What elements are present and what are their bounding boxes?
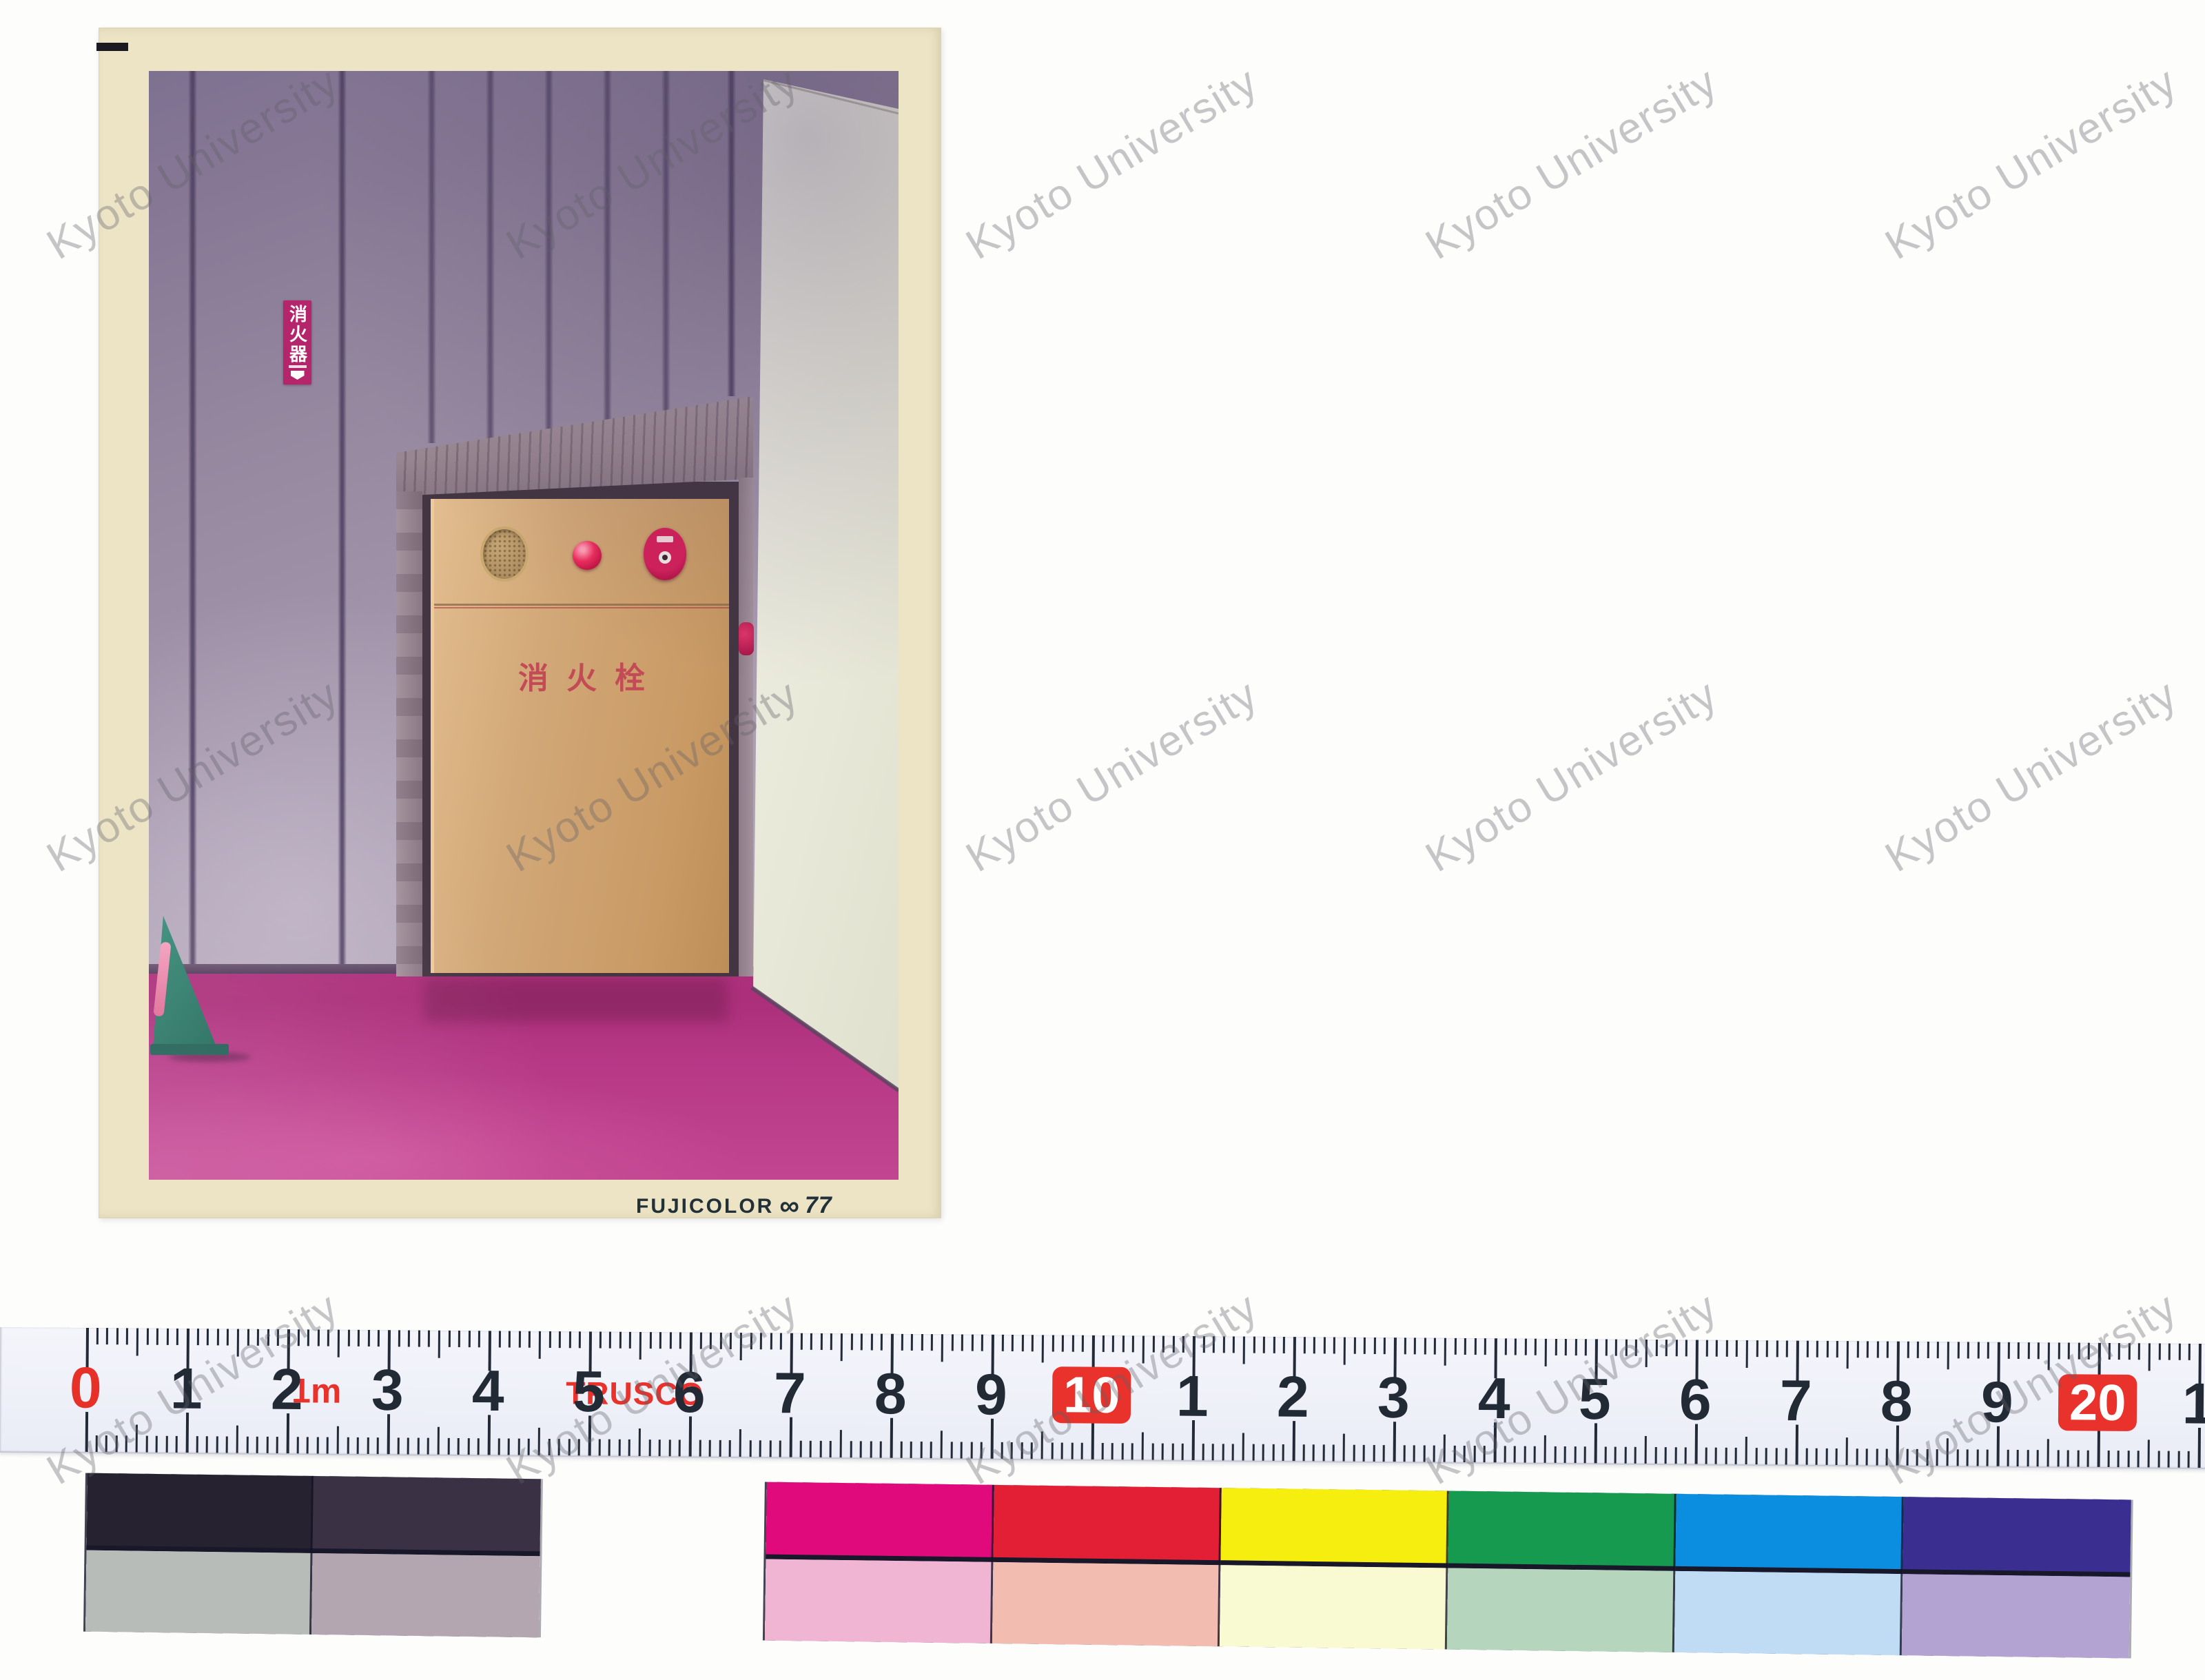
- ruler-tick: [1766, 1340, 1768, 1357]
- ruler-tick: [1936, 1449, 1938, 1466]
- ruler-tick: [2098, 1427, 2100, 1467]
- ruler-tick: [1101, 1443, 1103, 1459]
- ruler-tick: [1756, 1340, 1758, 1357]
- ruler-tick: [880, 1442, 882, 1458]
- ruler-tick: [1867, 1341, 1869, 1358]
- ruler-tick: [1262, 1444, 1264, 1461]
- ruler-tick: [1524, 1446, 1526, 1463]
- ruler-tick: [961, 1442, 963, 1458]
- ruler-tick: [1917, 1342, 1919, 1358]
- ruler-number: 8: [1880, 1372, 1913, 1430]
- ruler-tick: [357, 1437, 359, 1454]
- ruler-tick: [639, 1332, 642, 1360]
- ruler-tick: [740, 1333, 742, 1360]
- ruler-tick: [106, 1328, 108, 1344]
- ruler-tick: [1504, 1446, 1506, 1462]
- ruler-tick: [347, 1330, 349, 1346]
- alarm-button-label-plate: [657, 536, 673, 542]
- ruler-tick: [1313, 1337, 1315, 1353]
- ruler-tick: [1967, 1342, 1969, 1358]
- ruler-tick: [1947, 1342, 1949, 1369]
- ruler-tick: [1081, 1443, 1083, 1459]
- ruler-tick: [237, 1329, 239, 1357]
- ruler-tick: [1746, 1340, 1748, 1368]
- ruler-tick: [709, 1440, 711, 1457]
- ruler-tick: [1182, 1444, 1184, 1460]
- ruler-tick: [1072, 1335, 1074, 1352]
- ruler-tick: [1222, 1444, 1224, 1460]
- ruler-tick: [1726, 1340, 1728, 1357]
- wall-groove: [427, 71, 436, 443]
- color-patch: [87, 1473, 315, 1553]
- ruler-tick: [2038, 1342, 2040, 1359]
- ruler-tick: [1705, 1448, 1707, 1464]
- ruler-tick: [236, 1426, 238, 1453]
- ruler-tick: [639, 1428, 641, 1456]
- ruler-tick: [900, 1442, 902, 1458]
- ruler-tick: [1434, 1338, 1436, 1355]
- ruler-tick: [941, 1431, 943, 1458]
- sign-stand-base: [150, 1044, 229, 1055]
- ruler-tick: [1937, 1342, 1939, 1358]
- ruler-tick: [910, 1442, 912, 1458]
- ruler-tick: [1957, 1342, 1959, 1358]
- ruler-tick: [941, 1334, 943, 1362]
- ruler-tick: [1876, 1448, 1878, 1465]
- ruler-tick: [1433, 1446, 1435, 1462]
- ruler-tick: [1233, 1336, 1235, 1353]
- ruler-tick: [2058, 1342, 2060, 1359]
- watermark-text: Kyoto University: [1877, 670, 2186, 882]
- ruler-tick: [860, 1441, 862, 1457]
- ruler-tick: [578, 1439, 580, 1455]
- ruler-tick: [469, 1331, 471, 1347]
- ruler-number: 9: [975, 1365, 1007, 1423]
- ruler-tick: [165, 1436, 167, 1453]
- color-patch: [1903, 1497, 2131, 1577]
- ruler-tick: [1575, 1339, 1577, 1355]
- ruler-tick: [1635, 1340, 1637, 1356]
- ruler-tick: [176, 1329, 178, 1345]
- ruler-tick: [2077, 1451, 2079, 1467]
- ruler-tick: [1886, 1449, 1888, 1466]
- ruler-tick: [1545, 1339, 1547, 1366]
- ruler-tick: [1213, 1336, 1215, 1353]
- ruler-tick: [901, 1334, 903, 1351]
- ruler-tick: [911, 1334, 913, 1351]
- ruler-tick: [920, 1442, 922, 1458]
- ruler-tick: [217, 1329, 219, 1345]
- ruler-tick: [266, 1437, 268, 1453]
- color-patch-column: [311, 1476, 541, 1637]
- ruler-tick: [176, 1436, 178, 1453]
- ruler-tick: [2007, 1342, 2009, 1359]
- ruler-tick: [1484, 1446, 1486, 1462]
- ruler-tick: [1645, 1436, 1647, 1464]
- ruler-tick: [659, 1332, 661, 1349]
- ruler-number: 8: [874, 1364, 907, 1422]
- ruler-tick: [579, 1331, 581, 1348]
- ruler-tick: [840, 1430, 842, 1457]
- ruler-tick: [1625, 1340, 1628, 1356]
- ruler-tick: [1122, 1335, 1125, 1352]
- ruler-tick: [1564, 1446, 1566, 1463]
- ruler-tick: [759, 1440, 761, 1457]
- ruler-tick: [2068, 1343, 2070, 1360]
- ruler-tick: [1565, 1339, 1567, 1355]
- ruler-tick: [930, 1442, 932, 1458]
- ruler-number: 6: [673, 1363, 706, 1421]
- ruler-tick: [1825, 1448, 1827, 1465]
- ruler-tick: [1253, 1337, 1255, 1353]
- ruler-tick: [1303, 1337, 1305, 1353]
- ruler-tick: [779, 1440, 781, 1457]
- color-patch: [312, 1476, 540, 1556]
- cabinet-handle: [739, 622, 754, 655]
- ruler-tick: [1956, 1449, 1958, 1466]
- ruler-tick: [1716, 1340, 1718, 1357]
- color-patch: [85, 1550, 314, 1635]
- ruler-tick: [458, 1438, 460, 1455]
- ruler-tick: [1967, 1449, 1969, 1466]
- ruler-tick: [539, 1331, 541, 1359]
- ruler-tick: [478, 1331, 480, 1347]
- ruler-tick: [699, 1440, 701, 1457]
- ruler-tick: [2017, 1450, 2019, 1466]
- ruler-tick: [981, 1442, 983, 1459]
- ruler-tick: [226, 1436, 228, 1453]
- ruler-tick: [2088, 1343, 2090, 1360]
- ruler-tick: [1705, 1340, 1707, 1357]
- ruler-tick: [1947, 1438, 1949, 1466]
- ruler-tick: [760, 1333, 762, 1349]
- ruler-tick: [1173, 1336, 1175, 1353]
- color-patch: [993, 1485, 1221, 1565]
- ruler-tick: [448, 1331, 450, 1347]
- ruler-tick: [136, 1328, 139, 1355]
- ruler-number: 5: [1579, 1370, 1611, 1428]
- ruler-tick: [659, 1440, 661, 1456]
- ruler-tick: [1384, 1338, 1386, 1354]
- ruler-tick: [1554, 1446, 1556, 1463]
- ruler-tick: [730, 1333, 732, 1349]
- ruler-tick: [1534, 1446, 1536, 1463]
- ruler-tick: [1142, 1335, 1145, 1363]
- ruler-tick: [1816, 1448, 1818, 1465]
- ruler-tick: [1404, 1338, 1406, 1354]
- ruler-tick: [256, 1437, 258, 1453]
- wall-groove: [603, 71, 612, 440]
- ruler-tick: [1776, 1340, 1778, 1357]
- ruler-tick: [1272, 1444, 1274, 1461]
- ruler-tick: [619, 1332, 622, 1349]
- ruler-tick: [1614, 1447, 1617, 1464]
- ruler-tick: [337, 1426, 339, 1454]
- ruler-tick: [418, 1331, 420, 1347]
- ruler-tick: [1364, 1338, 1366, 1354]
- cabinet-text: 消火栓: [434, 653, 729, 697]
- ruler-tick: [609, 1332, 611, 1349]
- ruler-tick: [648, 1440, 650, 1456]
- ruler-tick: [1051, 1442, 1053, 1459]
- color-patch-column: [765, 1482, 994, 1643]
- ruler-tick: [699, 1333, 701, 1349]
- ruler-tick: [1654, 1447, 1657, 1464]
- ruler-tick: [629, 1332, 631, 1349]
- ruler-tick: [2117, 1451, 2120, 1467]
- ruler-tick: [1927, 1342, 1929, 1358]
- ruler-tick: [1544, 1435, 1546, 1463]
- ruler-tick: [1162, 1336, 1165, 1353]
- ruler-tick: [1132, 1335, 1134, 1352]
- ruler-tick: [1142, 1432, 1144, 1459]
- color-patch: [1220, 1565, 1448, 1649]
- ruler-tick: [2107, 1451, 2109, 1467]
- ruler-tick: [950, 1442, 952, 1458]
- ruler-tick: [1212, 1444, 1214, 1460]
- ruler-tick: [780, 1333, 782, 1349]
- ruler-number-highlighted: 10: [1052, 1366, 1131, 1424]
- ruler-tick: [599, 1332, 601, 1349]
- ruler-tick: [970, 1442, 972, 1459]
- ruler-tick: [2138, 1343, 2140, 1360]
- ruler-tick: [799, 1441, 801, 1457]
- ruler-tick: [1926, 1449, 1928, 1466]
- ruler-tick: [1012, 1335, 1014, 1351]
- ruler-tick: [819, 1441, 821, 1457]
- ruler-number: 5: [573, 1362, 605, 1420]
- ruler-tick: [1574, 1446, 1576, 1463]
- ruler-tick: [2078, 1343, 2080, 1360]
- ruler-tick: [861, 1333, 863, 1350]
- ruler-tick: [1856, 1448, 1858, 1465]
- ruler-tick: [2168, 1451, 2170, 1468]
- ruler-tick: [1765, 1448, 1767, 1464]
- ruler-tick: [841, 1333, 843, 1361]
- ruler-number: 7: [774, 1364, 806, 1422]
- ruler-tick: [438, 1427, 440, 1455]
- ruler-number: 4: [472, 1362, 504, 1420]
- ruler-tick: [1585, 1339, 1587, 1355]
- color-patch: [766, 1482, 994, 1562]
- ruler-tick: [800, 1333, 802, 1350]
- ruler-number: 1: [2182, 1374, 2205, 1432]
- fujicolor-chain-logo-icon: ∞: [779, 1191, 799, 1221]
- ruler-tick: [1685, 1447, 1687, 1464]
- ruler-tick: [1535, 1339, 1537, 1355]
- ruler-tick: [95, 1435, 97, 1452]
- color-patch: [765, 1559, 994, 1643]
- ruler-tick: [167, 1329, 169, 1345]
- ruler-tick: [307, 1329, 309, 1346]
- ruler-tick: [1243, 1337, 1245, 1364]
- alarm-lamp-icon: [573, 541, 602, 570]
- ruler-tick: [196, 1436, 198, 1453]
- ruler-tick: [2137, 1451, 2140, 1467]
- ruler-tick: [297, 1329, 299, 1346]
- ruler-tick: [1676, 1340, 1678, 1356]
- ruler-tick: [1001, 1442, 1003, 1459]
- ruler-tick: [1344, 1338, 1346, 1365]
- ruler-tick: [810, 1441, 812, 1457]
- ruler-number: 4: [1478, 1369, 1510, 1427]
- ruler-tick: [769, 1440, 771, 1457]
- ruler-tick: [327, 1330, 329, 1346]
- ruler-tick: [598, 1440, 600, 1456]
- ruler-tick: [378, 1330, 380, 1346]
- film-number-text: 77: [805, 1192, 832, 1218]
- ruler-tick: [1011, 1442, 1013, 1459]
- color-patch-column: [992, 1485, 1222, 1646]
- ruler-tick: [1313, 1444, 1315, 1461]
- ruler-tick: [1263, 1337, 1265, 1353]
- ruler-tick: [1282, 1444, 1284, 1461]
- ruler-tick: [438, 1331, 440, 1358]
- ruler-tick: [1444, 1435, 1446, 1462]
- ruler-tick: [1584, 1446, 1586, 1463]
- ruler-tick: [1605, 1339, 1607, 1355]
- ruler-tick: [821, 1333, 823, 1350]
- ruler-tick: [1152, 1336, 1154, 1353]
- ruler-tick: [1736, 1340, 1738, 1357]
- ruler-tick: [1615, 1340, 1617, 1356]
- lit-side-wall: [741, 71, 899, 1098]
- ruler-tick: [2179, 1344, 2181, 1360]
- ruler-tick: [548, 1331, 551, 1348]
- ruler-tick: [529, 1331, 531, 1348]
- ruler-tick: [1665, 1340, 1668, 1356]
- ruler-tick: [1182, 1336, 1184, 1353]
- ruler-tick: [1806, 1341, 1808, 1358]
- ruler-tick: [1202, 1444, 1204, 1460]
- photograph: 消火栓 消火器: [149, 71, 899, 1180]
- ruler-tick: [397, 1437, 399, 1454]
- ruler-tick: [1665, 1447, 1667, 1464]
- color-patch: [1447, 1568, 1676, 1652]
- ruler-tick: [850, 1333, 852, 1350]
- ruler-tick: [296, 1437, 298, 1453]
- ruler-number: 9: [1981, 1373, 2013, 1431]
- ruler-tick: [628, 1440, 630, 1456]
- registration-dash-mark: [96, 43, 128, 51]
- ruler-tick: [1473, 1446, 1475, 1462]
- ruler-number-highlighted: 20: [2058, 1374, 2137, 1431]
- ruler-tick: [447, 1438, 449, 1455]
- ruler-tick: [1655, 1340, 1657, 1356]
- ruler-tick: [2188, 1344, 2191, 1360]
- ruler-tick: [972, 1335, 974, 1351]
- ruler-tick: [1171, 1444, 1173, 1460]
- ruler-tick: [2007, 1450, 2009, 1466]
- ruler-tick: [227, 1329, 229, 1345]
- ruler-tick: [1363, 1445, 1365, 1462]
- ruler-tick: [1987, 1342, 1989, 1359]
- ruler-tick: [1634, 1447, 1637, 1464]
- ruler-tick: [569, 1331, 571, 1348]
- color-patch: [1220, 1488, 1448, 1568]
- color-calibration-chart: [0, 1472, 2205, 1680]
- ruler-tick: [267, 1329, 269, 1346]
- ruler-tick: [136, 1424, 138, 1452]
- ruler-number: 2: [271, 1360, 303, 1418]
- ruler-tick: [398, 1330, 400, 1346]
- ruler-tick: [277, 1329, 279, 1346]
- watermark-text: Kyoto University: [1877, 57, 2186, 269]
- fire-hydrant-cabinet: 消火栓: [431, 499, 729, 973]
- ruler-tick: [1816, 1341, 1818, 1358]
- ruler-tick: [1725, 1448, 1727, 1464]
- ruler-tick: [2157, 1451, 2160, 1468]
- ruler-tick: [1322, 1444, 1324, 1461]
- color-patch: [311, 1553, 540, 1637]
- ruler-tick: [1413, 1445, 1415, 1462]
- ruler-tick: [115, 1435, 117, 1452]
- ruler-tick: [921, 1334, 923, 1351]
- ruler-tick: [156, 1329, 158, 1345]
- ruler-number: 7: [1780, 1371, 1812, 1429]
- ruler-tick: [517, 1439, 520, 1455]
- ruler-tick: [1685, 1340, 1688, 1356]
- ruler-tick: [1403, 1445, 1405, 1462]
- alarm-bell-button-icon: [644, 528, 686, 580]
- ruler-tick: [1333, 1445, 1335, 1462]
- color-patch: [992, 1562, 1221, 1646]
- ruler-tick: [156, 1436, 158, 1453]
- ruler-tick: [1735, 1448, 1737, 1464]
- sign-small-text-bar: [289, 365, 307, 368]
- ruler-tick: [668, 1440, 670, 1456]
- sign-arrow-icon: [291, 371, 305, 380]
- watermark-text: Kyoto University: [958, 670, 1266, 882]
- ruler-tick: [1444, 1338, 1446, 1366]
- ruler-tick: [1604, 1446, 1606, 1463]
- ruler-tick: [257, 1329, 259, 1346]
- ruler-tick: [1102, 1335, 1104, 1352]
- ruler-tick: [1343, 1434, 1345, 1462]
- ruler-tick: [216, 1436, 218, 1453]
- ruler-tick: [1302, 1444, 1304, 1461]
- ruler-tick: [196, 1329, 198, 1345]
- ruler-tick: [1242, 1433, 1244, 1461]
- ruler-tick: [417, 1438, 419, 1455]
- ruler-tick: [749, 1440, 751, 1457]
- ruler-tick: [1453, 1446, 1455, 1462]
- alcove-right-jamb: [739, 478, 753, 976]
- ruler-number: 1: [170, 1359, 203, 1417]
- ruler-tick: [1624, 1447, 1626, 1464]
- ruler-tick: [509, 1331, 511, 1348]
- ruler-tick: [2118, 1343, 2120, 1360]
- ruler-tick: [1423, 1446, 1425, 1462]
- ruler-tick: [548, 1439, 550, 1455]
- ruler-tick: [1976, 1450, 1978, 1466]
- ruler-tick: [871, 1333, 873, 1350]
- ruler-tick: [307, 1437, 309, 1453]
- ruler-tick: [247, 1329, 249, 1346]
- ruler-tick: [377, 1437, 379, 1454]
- ruler-tick: [1887, 1342, 1889, 1358]
- alcove-left-jamb: [396, 491, 422, 976]
- ruler-tick: [2067, 1451, 2069, 1467]
- ruler-tick: [498, 1331, 500, 1347]
- ruler-tick: [246, 1437, 248, 1453]
- cabinet-red-trim-line: [434, 607, 729, 608]
- ruler-tick: [850, 1441, 852, 1457]
- ruler-tick: [2158, 1344, 2160, 1360]
- ruler-tick: [618, 1440, 620, 1456]
- ruler-tick: [1021, 1442, 1023, 1459]
- ruler-tick: [1674, 1447, 1676, 1464]
